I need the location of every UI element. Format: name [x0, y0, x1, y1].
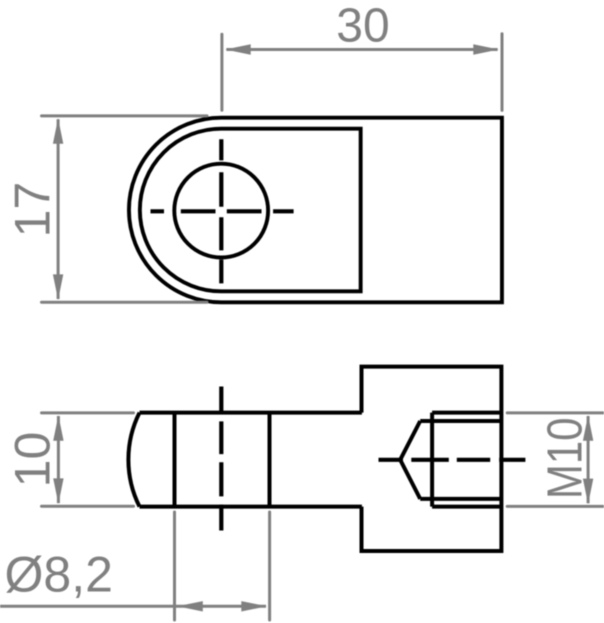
- svg-text:17: 17: [5, 182, 61, 238]
- svg-text:Ø8,2: Ø8,2: [5, 547, 113, 603]
- svg-text:M10: M10: [536, 417, 592, 499]
- svg-text:30: 30: [336, 0, 389, 53]
- svg-text:10: 10: [5, 432, 61, 488]
